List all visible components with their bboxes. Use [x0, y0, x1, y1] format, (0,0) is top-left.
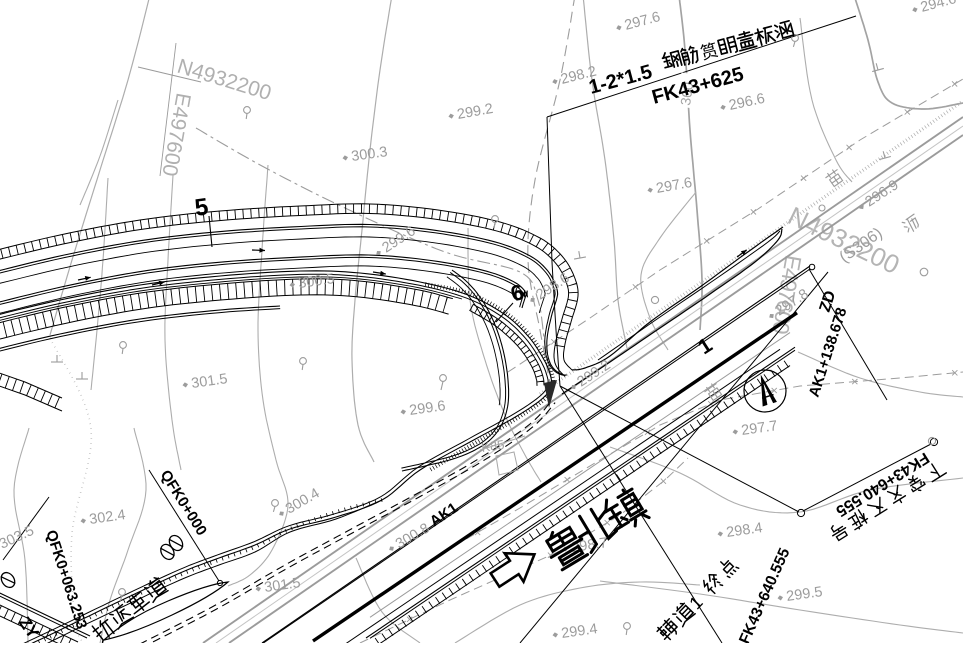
svg-text:297.6: 297.6	[655, 175, 694, 197]
svg-text:QFK0+000: QFK0+000	[157, 467, 211, 539]
svg-text:302.4: 302.4	[88, 507, 126, 528]
svg-text:QFK0+063.253: QFK0+063.253	[42, 528, 90, 631]
svg-text:297.6: 297.6	[623, 9, 662, 34]
svg-text:AK1+138.678: AK1+138.678	[806, 306, 851, 400]
svg-text:296.6: 296.6	[728, 91, 767, 114]
svg-text:299.6: 299.6	[408, 398, 446, 419]
svg-text:筼: 筼	[698, 40, 720, 64]
svg-text:300.4: 300.4	[283, 485, 322, 517]
svg-text:299.4: 299.4	[560, 621, 598, 642]
svg-text:ZY: ZY	[15, 613, 43, 642]
svg-text:297.7: 297.7	[740, 418, 778, 439]
svg-text:1: 1	[685, 592, 706, 613]
svg-text:298.4: 298.4	[725, 520, 763, 541]
svg-text:5: 5	[193, 193, 210, 222]
svg-text:E497600: E497600	[157, 91, 194, 178]
svg-text:303.5: 303.5	[0, 523, 37, 553]
svg-text:299.2: 299.2	[574, 357, 613, 390]
svg-text:299.2: 299.2	[456, 101, 495, 123]
svg-text:300.3: 300.3	[350, 144, 388, 165]
svg-text:FK43+640.555: FK43+640.555	[833, 449, 932, 520]
svg-text:294.6: 294.6	[919, 0, 958, 16]
svg-text:1: 1	[694, 333, 717, 359]
svg-text:299.5: 299.5	[785, 584, 823, 605]
svg-text:301.5: 301.5	[190, 371, 228, 392]
